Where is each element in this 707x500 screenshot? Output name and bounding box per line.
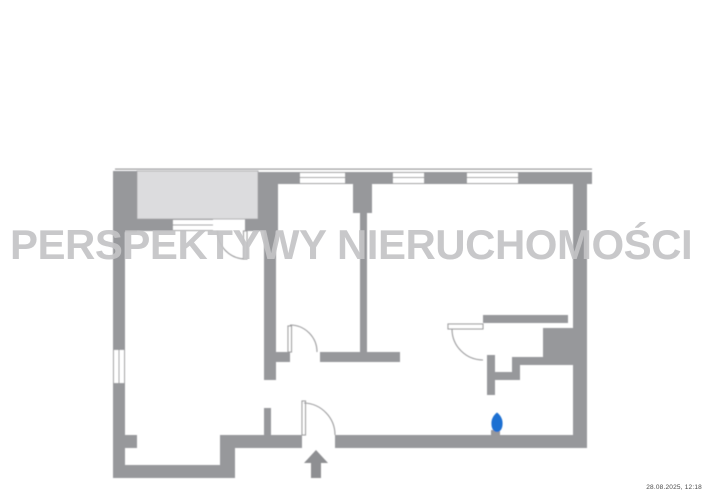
entrance-door [302,401,335,435]
middle-room-door [288,325,317,352]
window-icon-top-1 [300,172,345,184]
door-arc-icon [290,325,317,352]
door-arc-icon [452,329,483,360]
bathroom-door [448,324,483,360]
balcony [137,171,258,219]
water-point-icon [491,413,502,433]
door-arc-icon [304,403,335,435]
watermark: PERSPEKTYWY NIERUCHOMOŚCI [10,224,707,266]
entrance-arrow-icon [304,450,328,478]
scanned-floorplan-page: PERSPEKTYWY NIERUCHOMOŚCI 28.08.2025, 12… [0,0,707,500]
top-face-line [115,169,592,170]
timestamp: 28.08.2025, 12:18 [646,484,702,491]
window-icon-top-3 [467,172,518,184]
window-icon-top-2 [393,172,424,184]
window-icon-left [113,350,125,383]
